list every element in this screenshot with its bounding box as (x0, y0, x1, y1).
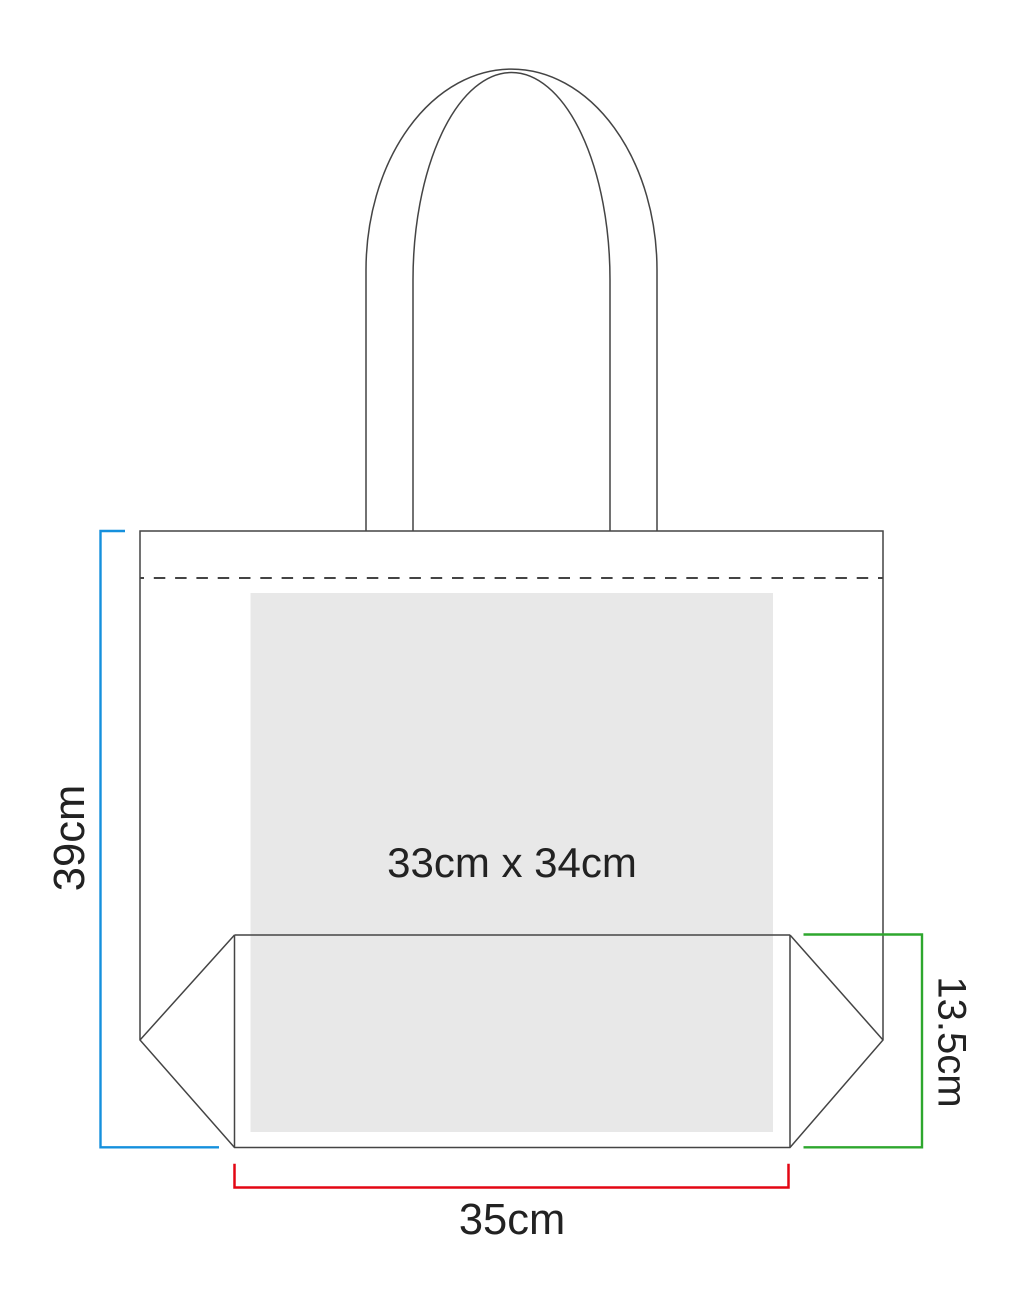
svg-text:13.5cm: 13.5cm (930, 976, 974, 1107)
svg-text:33cm x 34cm: 33cm x 34cm (387, 839, 637, 886)
svg-text:39cm: 39cm (46, 785, 94, 891)
svg-text:35cm: 35cm (459, 1196, 565, 1244)
